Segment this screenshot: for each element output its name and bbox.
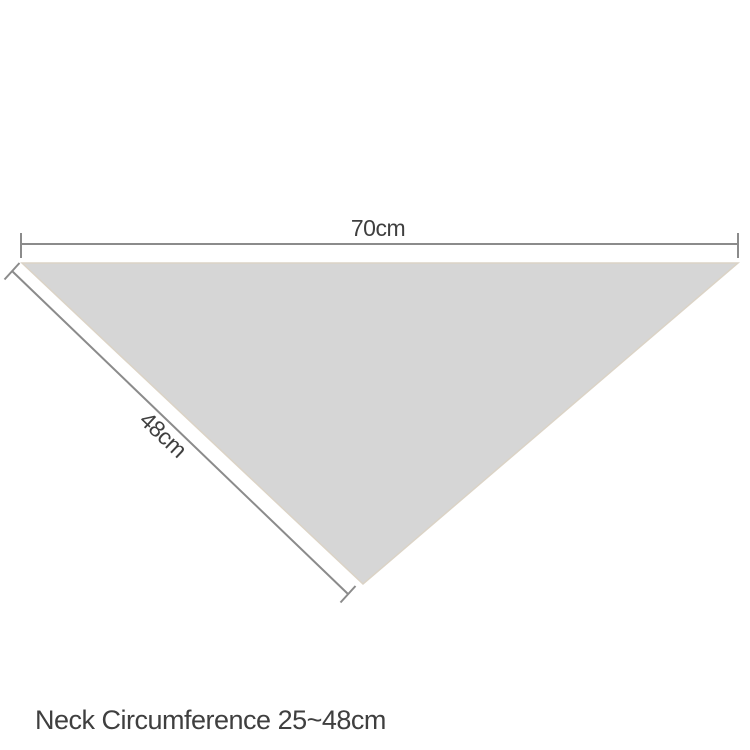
neck-circumference-caption: Neck Circumference 25~48cm (35, 705, 386, 736)
top-width-label: 70cm (351, 215, 405, 241)
bandana-size-diagram-canvas: 70cm 48cm (0, 0, 750, 750)
bandana-triangle-shape (22, 263, 738, 584)
product-size-diagram: 70cm 48cm Neck Circumference 25~48cm (0, 0, 750, 750)
